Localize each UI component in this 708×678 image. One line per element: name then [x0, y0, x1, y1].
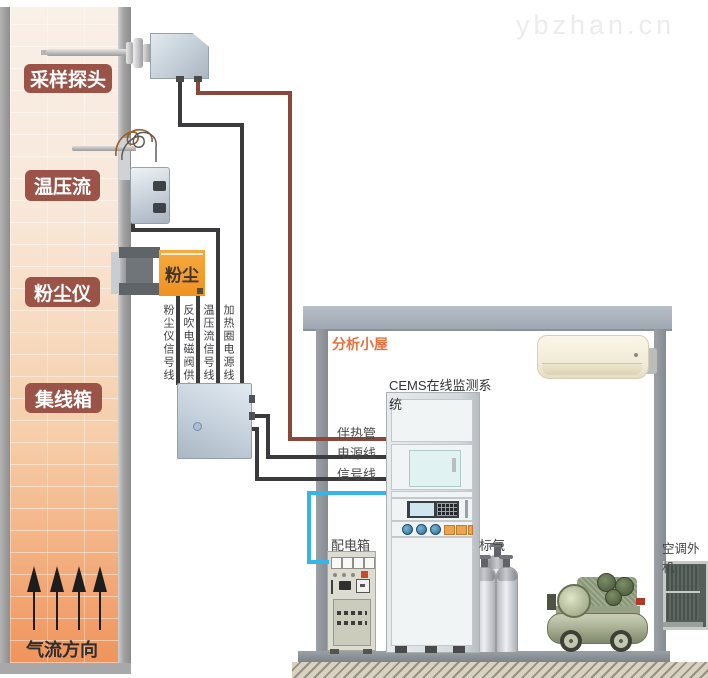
tpf-transmitter-housing — [130, 167, 170, 224]
heating-power-wire — [178, 78, 182, 127]
ac-outdoor-label: 空调外机 — [662, 538, 708, 576]
cabinet-foot — [453, 646, 465, 653]
compressor-valve — [636, 598, 645, 605]
breaker-icon — [364, 557, 375, 569]
cable-connector — [249, 395, 255, 403]
cabinet-panel — [391, 537, 473, 646]
tpf-signal-wire — [216, 228, 220, 385]
probe-flange — [133, 38, 143, 68]
cable-connector — [176, 76, 184, 82]
knob-icon — [402, 524, 413, 535]
wheel-icon — [560, 630, 582, 652]
ground-hatch — [292, 662, 708, 678]
stack-base — [0, 663, 131, 674]
stack-wall — [10, 7, 118, 663]
ac-indoor-unit — [537, 335, 649, 379]
label-dust-meter: 粉尘仪 — [25, 277, 100, 307]
valve-handle — [499, 555, 513, 559]
vent-slots — [337, 621, 367, 625]
cabinet-foot — [425, 646, 437, 653]
dust-meter-mount — [119, 283, 160, 295]
heated-sample-line — [196, 91, 292, 95]
tpf-connector — [153, 181, 166, 191]
ac-outdoor-base — [663, 622, 703, 627]
label-heated-sample-line: 伴热管 — [298, 423, 376, 442]
handle-icon — [452, 458, 456, 472]
breaker-icon — [331, 557, 342, 569]
wheel-icon — [610, 630, 632, 652]
probe-flange — [126, 42, 133, 64]
cems-cabinet-label: CEMS在线监测系统 — [389, 375, 499, 413]
compressor-motor — [557, 584, 591, 618]
up-arrow-icon — [72, 566, 86, 630]
distribution-box-label: 配电箱 — [331, 535, 370, 554]
cabin-roof — [303, 306, 672, 331]
cable-connector — [249, 412, 255, 420]
watermark: ybzhan.cn — [516, 10, 708, 41]
distribution-box — [327, 551, 376, 651]
sampling-probe-housing — [150, 33, 209, 79]
cabinet-panel — [391, 444, 473, 490]
gauge-icon — [465, 500, 468, 518]
dust-meter-mount — [126, 258, 153, 283]
dust-meter-mount — [119, 247, 160, 258]
cems-cabinet — [386, 392, 480, 653]
vent-panel — [333, 599, 371, 646]
breaker-icon — [342, 557, 353, 569]
box-foot — [330, 649, 339, 654]
dust-signal-wire — [176, 294, 180, 385]
gas-cylinder — [496, 567, 518, 653]
keypad-icon — [437, 503, 457, 516]
ac-grille-divider — [666, 591, 700, 593]
box-foot — [363, 649, 372, 654]
knob-icon — [430, 524, 441, 535]
label-signal-wire: 信号线 — [298, 464, 376, 483]
label-junction-box: 集线箱 — [25, 383, 102, 413]
plug-icon — [339, 581, 351, 590]
display-bezel — [407, 501, 459, 518]
knob-icon — [416, 524, 427, 535]
label-power-wire: 电源线 — [298, 443, 376, 462]
indicator-icon — [351, 573, 355, 577]
up-arrow-icon — [93, 566, 107, 630]
sampling-probe-tube — [46, 49, 128, 56]
indicator-icon — [333, 573, 337, 577]
label-sampling-probe: 采样探头 — [24, 64, 112, 93]
control-blue-wire — [307, 491, 311, 564]
cabin-title: 分析小屋 — [332, 334, 388, 354]
wire-label-tpf-signal: 温压流信号线 — [202, 304, 216, 382]
button-icon — [444, 525, 455, 535]
wire-label-dust-signal: 粉尘仪信号线 — [162, 304, 176, 382]
standard-gas-label: 标气 — [479, 535, 505, 554]
control-blue-wire — [307, 560, 329, 564]
compressor-cylinder-head — [605, 589, 622, 606]
up-arrow-icon — [50, 566, 64, 630]
lever-icon — [331, 580, 333, 594]
power-wire — [266, 414, 270, 459]
red-indicator-icon — [361, 571, 368, 578]
probe-flange — [143, 44, 151, 62]
compressor-bracket — [547, 594, 556, 610]
heating-power-wire — [240, 123, 244, 385]
control-blue-wire — [307, 491, 388, 495]
blowback-power-wire — [196, 294, 200, 385]
dust-meter-connector — [197, 288, 203, 294]
cems-system-diagram: ybzhan.cn 采样探头 温压流 粉尘仪 集线箱 气流方向 粉尘 — [0, 0, 708, 678]
breaker-icon — [353, 557, 364, 569]
label-temp-pressure-flow: 温压流 — [25, 170, 100, 201]
indicator-icon — [342, 573, 346, 577]
ac-indicator-icon — [634, 353, 638, 357]
cabinet-knob-panel — [391, 521, 473, 537]
up-arrow-icon — [27, 566, 41, 630]
stack-right-edge — [118, 7, 131, 663]
lcd-screen — [410, 503, 434, 516]
tpf-signal-wire — [131, 228, 220, 232]
handle-icon — [193, 422, 202, 431]
cable-connector — [194, 76, 202, 82]
wire-label-heating-power: 加热圈电源线 — [222, 304, 236, 382]
stack-left-edge — [0, 7, 10, 674]
cabinet-foot — [395, 646, 407, 653]
button-icon — [456, 525, 467, 535]
signal-wire — [255, 427, 259, 481]
flow-direction-label: 气流方向 — [26, 636, 136, 662]
junction-box-device — [177, 383, 252, 459]
tpf-connector — [153, 203, 166, 213]
cabinet-panel — [391, 491, 473, 498]
wire-coil-icon — [112, 122, 164, 169]
heating-power-wire — [178, 123, 244, 127]
ac-louver — [542, 363, 642, 375]
vent-slots — [337, 611, 367, 615]
heated-sample-line — [288, 91, 292, 441]
cabinet-control-panel — [391, 498, 473, 521]
outlet-icon — [356, 579, 370, 593]
button-icon — [468, 525, 473, 535]
